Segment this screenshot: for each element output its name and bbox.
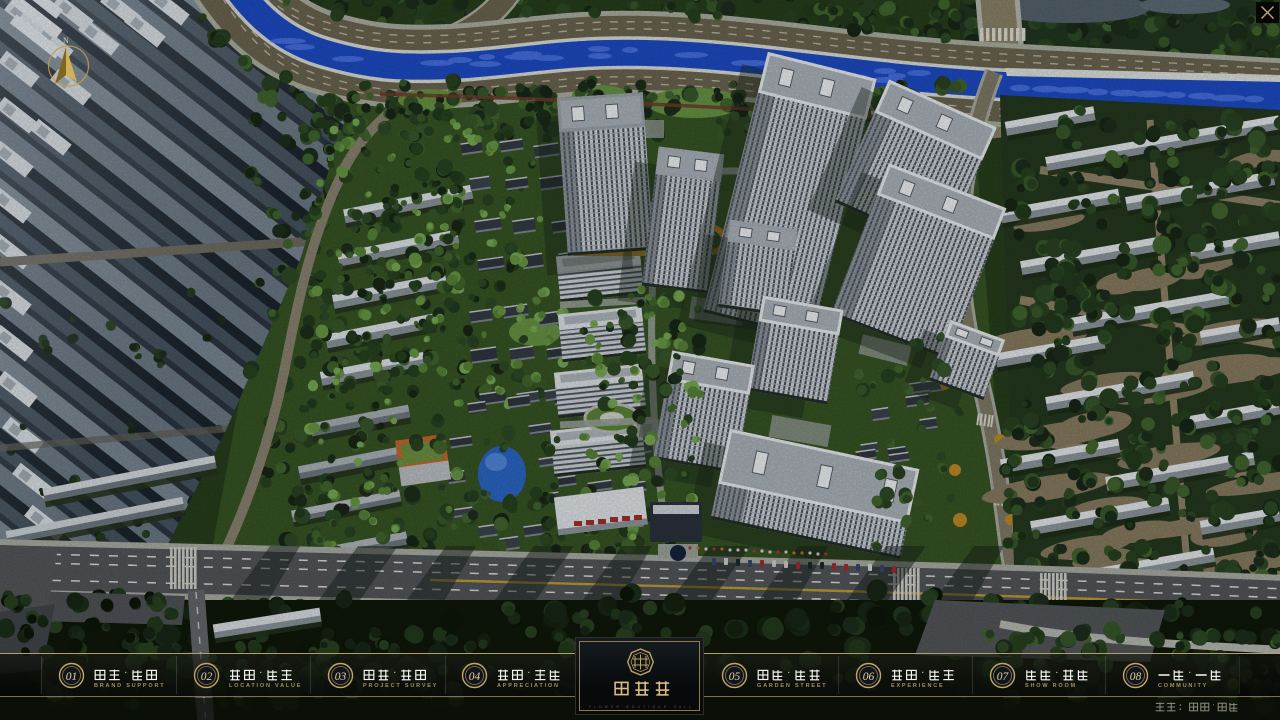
svg-text:N: N (63, 36, 69, 45)
